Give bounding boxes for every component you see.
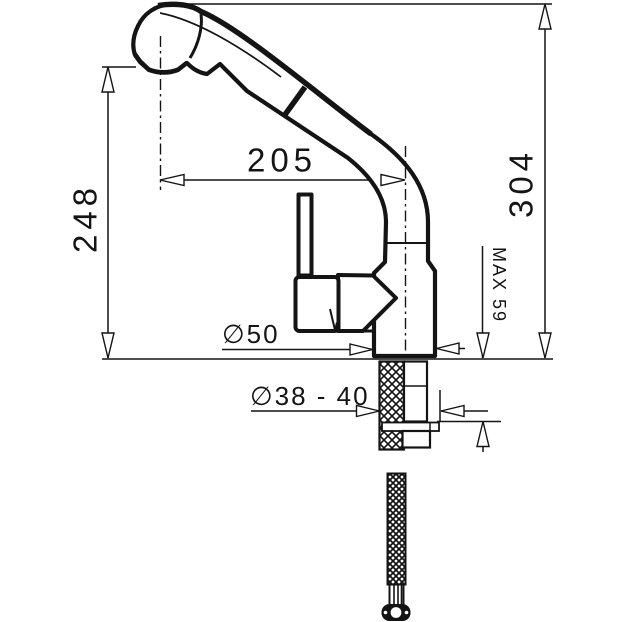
arrow-304-bottom bbox=[539, 333, 551, 358]
dim-248-label: 248 bbox=[69, 183, 102, 253]
dim-max59-label: MAX 59 bbox=[490, 247, 508, 323]
arrow-max59-up bbox=[477, 422, 489, 447]
technical-drawing: 205 248 304 MAX 59 ∅50 ∅38 - 40 bbox=[0, 0, 622, 622]
arrow-248-top bbox=[102, 67, 114, 92]
mounting-nut bbox=[403, 431, 431, 448]
hose-end-nut-highlight bbox=[405, 611, 409, 615]
drawing-canvas bbox=[0, 0, 622, 622]
dim-d3840-label: ∅38 - 40 bbox=[250, 383, 370, 409]
arrow-d3840-right bbox=[441, 406, 464, 417]
arrow-205-left bbox=[160, 175, 184, 186]
arrow-304-top bbox=[539, 4, 551, 29]
braided-hose bbox=[388, 474, 406, 585]
dim-205-label: 205 bbox=[247, 144, 317, 177]
shank-pipe bbox=[404, 362, 427, 422]
lever-handle bbox=[299, 195, 312, 276]
arrow-248-bottom bbox=[102, 333, 114, 358]
arrow-d50-left bbox=[350, 344, 373, 355]
under-counter-assembly bbox=[380, 362, 440, 622]
dim-d50-label: ∅50 bbox=[222, 321, 280, 347]
threaded-shank bbox=[380, 362, 405, 450]
dim-304-label: 304 bbox=[505, 148, 538, 218]
arrow-max59-down bbox=[477, 333, 489, 358]
hose-end-nut-highlight bbox=[384, 611, 388, 615]
hose-end-nut-center bbox=[391, 607, 402, 618]
handle-base-block bbox=[296, 277, 339, 331]
arrow-d50-right bbox=[437, 343, 460, 354]
